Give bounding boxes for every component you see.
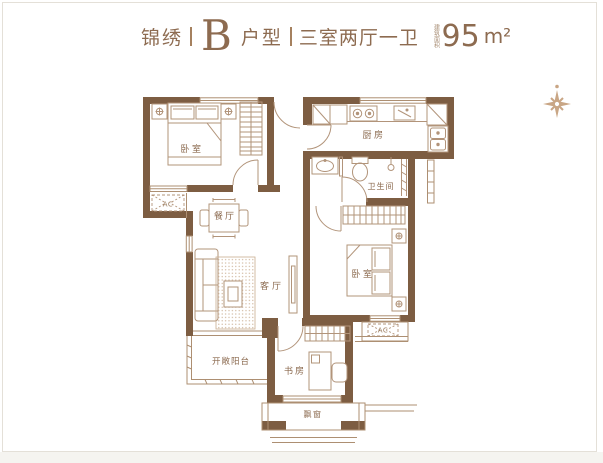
kitchen-label: 厨房 <box>362 129 385 141</box>
kitchen-fixtures <box>313 104 448 152</box>
kitchen-door-arc <box>307 125 331 149</box>
bedroom2-furniture <box>343 206 406 311</box>
ac1-label: AC <box>163 201 174 209</box>
bathroom-label: 卫生间 <box>368 181 395 191</box>
study-label: 书房 <box>284 365 306 377</box>
ac2-label: AC <box>378 327 389 335</box>
bay-window-label: 飘窗 <box>304 409 323 419</box>
bedroom2-door-arc <box>316 206 341 231</box>
floor-plan: 卧室 厨房 卫生间 餐厅 客厅 卧室 开敞阳台 书房 飘窗 AC AC <box>0 0 603 463</box>
entry-door-arc <box>274 102 300 128</box>
study-furniture <box>305 326 350 390</box>
bathroom-door-arc <box>342 177 367 202</box>
bedroom1-door-arc <box>233 160 258 185</box>
living-label: 客厅 <box>260 280 284 292</box>
bedroom1-furniture <box>152 102 262 165</box>
bedroom2-label: 卧室 <box>351 268 374 280</box>
dining-label: 餐厅 <box>214 210 236 222</box>
balcony-label: 开敞阳台 <box>212 356 250 367</box>
study-door-arc <box>278 326 303 351</box>
compass-icon <box>543 85 571 118</box>
bedroom1-label: 卧室 <box>180 143 203 155</box>
